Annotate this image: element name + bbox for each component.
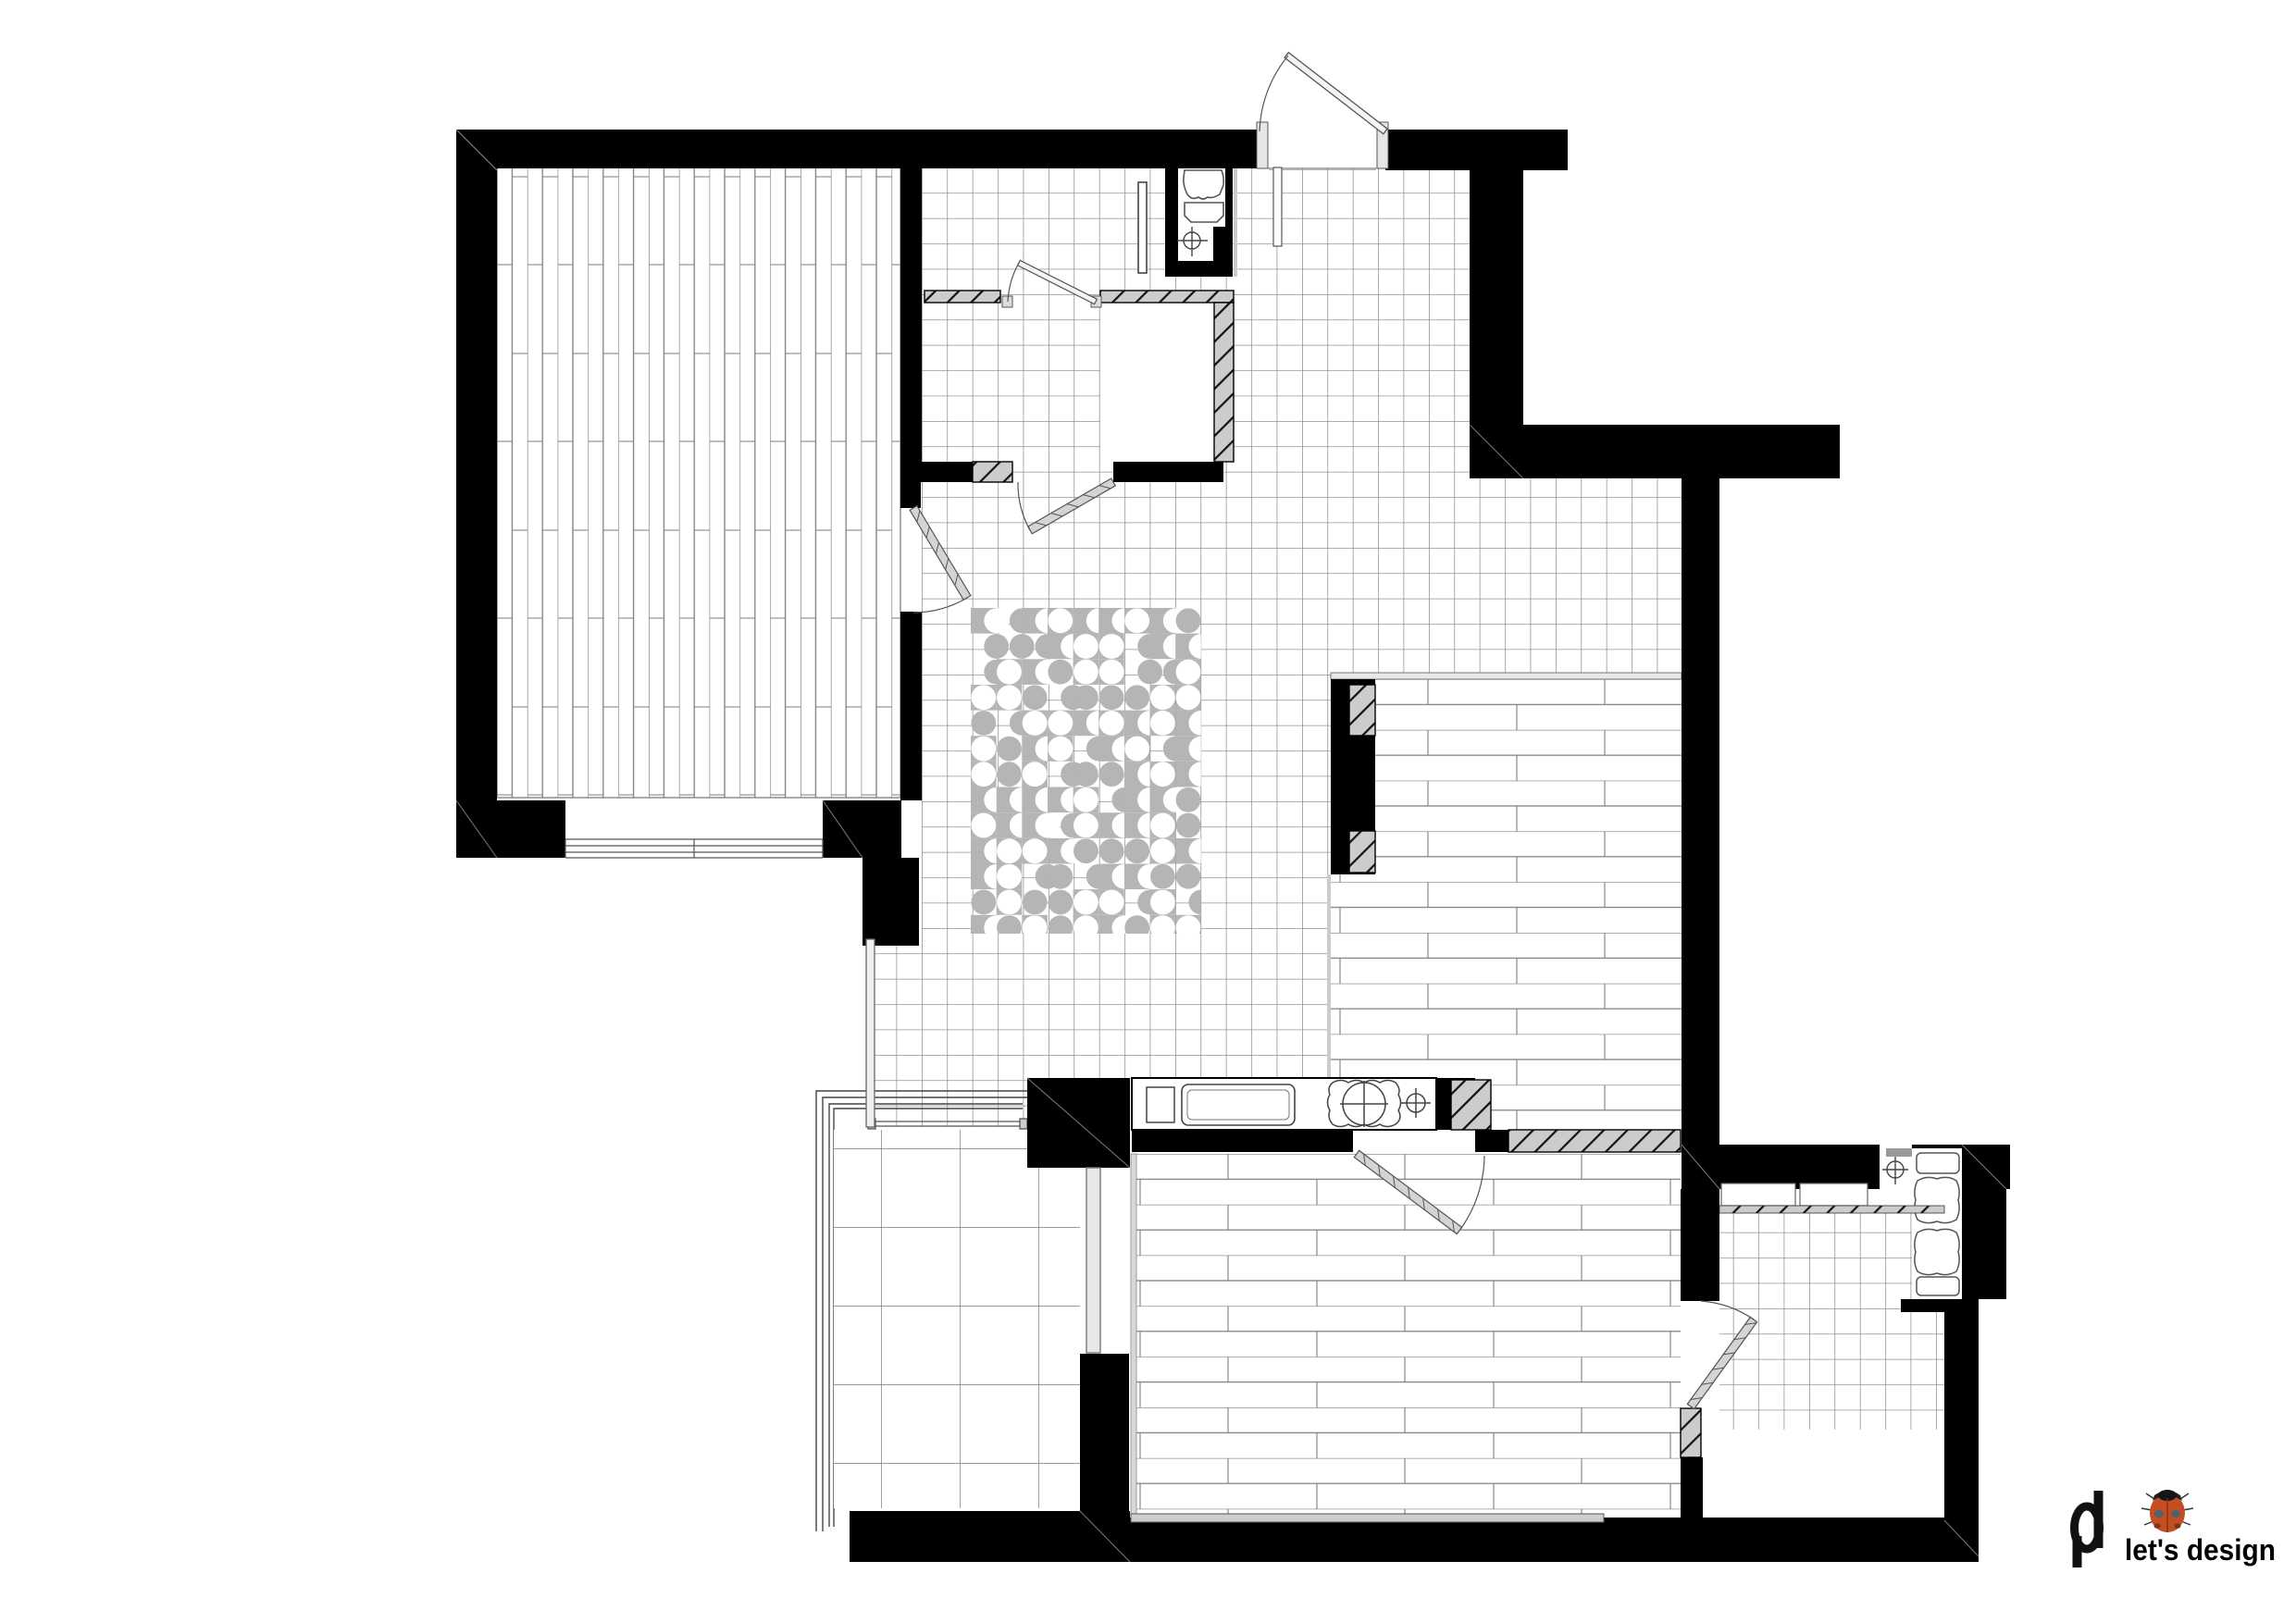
svg-text:let's design: let's design — [2125, 1533, 2276, 1567]
